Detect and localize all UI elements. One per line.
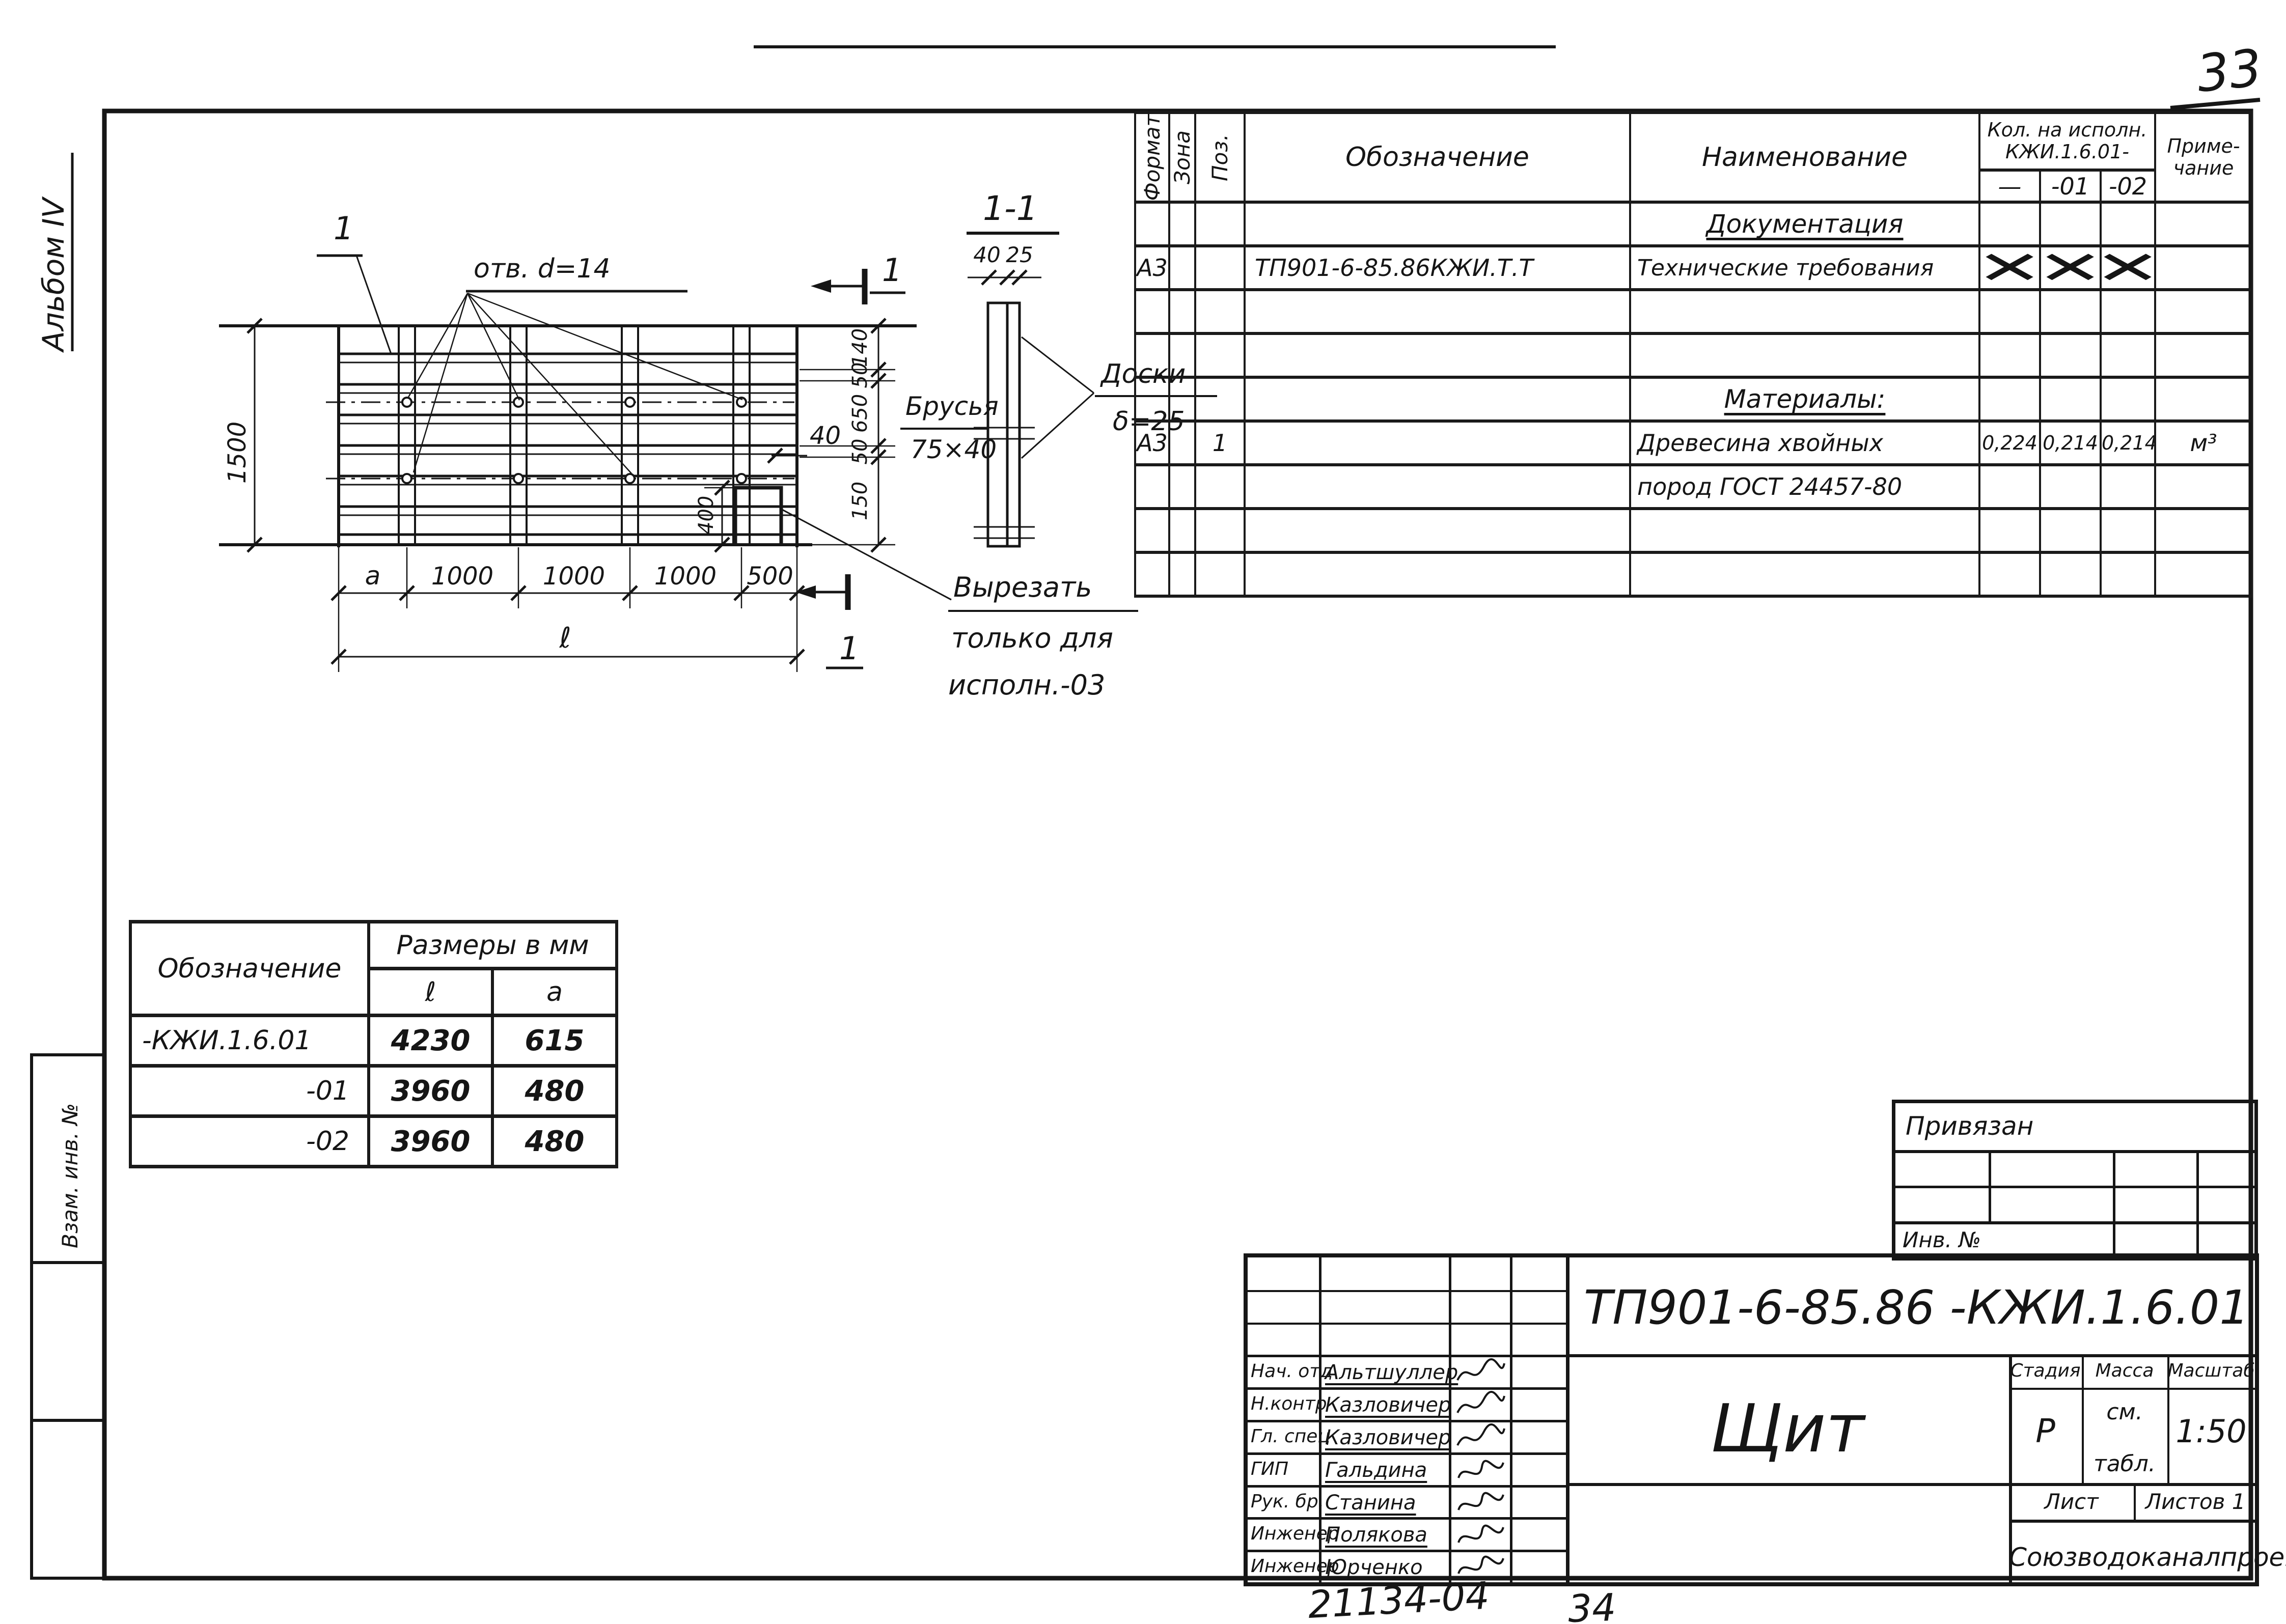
dimtab-row2-a: 480 [492,1066,617,1116]
qty-subcol-01: -01 [2040,170,2101,203]
dim-a: a [365,561,381,591]
sheets-label: Листов 1 [2136,1489,2255,1514]
mass-label: Масса [2082,1360,2167,1381]
section-dim-40: 40 [973,242,1000,267]
dim-1000-2: 1000 [543,562,605,591]
doc-row-format: А3 [1135,246,1169,290]
battens-label-line2: 75×40 [911,435,997,464]
dim-1000-1: 1000 [431,562,493,591]
col-header-pos: Поз. [1195,113,1245,202]
section-heading-documentation: Документация [1630,202,1979,246]
chain-140: 140 [848,328,872,367]
qty-subcol-base: — [1979,170,2040,203]
dim-height-text: 1500 [223,422,252,484]
dim-500: 500 [747,562,793,591]
section-mark-bottom-text: 1 [839,630,859,667]
col-header-designation: Обозначение [1245,113,1630,202]
table-row: -01 3960 480 [130,1066,617,1116]
section-mark-bottom-group [795,574,848,610]
inventory-number-label: Инв. № [1903,1227,1981,1252]
holes-label-group: отв. d=14 [408,254,742,473]
material-qty-base: 0,224 [1979,421,2040,465]
dimtab-row1-l: 4230 [369,1016,492,1066]
signature-role: Гл. спец [1251,1426,1330,1447]
stage-label: Стадия [2009,1360,2082,1381]
dimtab-header-a: a [492,969,617,1016]
section-heading-materials: Материалы: [1630,377,1979,421]
dimtab-header-l: ℓ [369,969,492,1016]
signature-role: Н.контр [1251,1393,1327,1414]
signature-role: Нач. отд [1251,1361,1333,1382]
dimtab-row1-a: 615 [492,1016,617,1066]
doc-row-mark-3: ✕ [2101,246,2155,290]
holes-label: отв. d=14 [474,254,611,284]
signature-name: Полякова [1325,1523,1427,1547]
dim-400-text: 400 [695,496,718,535]
organization-name: Союзводоканалпроект [2009,1543,2255,1572]
dimensions-table: Обозначение Размеры в мм ℓ a -КЖИ.1.6.01… [129,920,616,1168]
section-title: 1-1 [983,189,1038,228]
dimtab-row1-designation: -КЖИ.1.6.01 [130,1016,369,1066]
position-number: 1 [334,210,353,247]
signature-name: Гальдина [1325,1459,1427,1482]
material-row-format: А3 [1135,421,1169,465]
sheet-number: 33 [2194,38,2265,104]
chain-50b: 50 [848,439,872,465]
material-row-name1: Древесина хвойных [1630,421,1979,465]
col-header-format: Формат [1135,113,1169,202]
title-block: Нач. отд Альтшуллер Н.контр Казловичер Г… [1244,1253,2259,1586]
col-header-note: Приме- чание [2155,113,2252,202]
cutout-note-line1: Вырезать [953,571,1092,603]
mass-value-line1: см. [2082,1399,2167,1425]
col-header-qty: Кол. на исполн. КЖИ.1.6.01- [1979,113,2155,170]
cutout-note: Вырезать только для исполн.-03 [781,509,1138,701]
dimtab-row3-l: 3960 [369,1116,492,1167]
dim-40-text: 40 [810,422,841,450]
scale-label: Масштаб [2167,1360,2255,1381]
position-label: 1 [317,210,391,354]
table-row: -02 3960 480 [130,1116,617,1167]
dimtab-header-sizes: Размеры в мм [369,922,617,969]
margin-stamp-label: Взам. инв. № [58,1103,82,1248]
cutout-note-line3: исполн.-03 [948,669,1105,701]
chain-150: 150 [848,482,872,520]
drawing-sheet: Альбом IV Взам. инв. № 33 21134-04 34 [0,0,2286,1624]
col-header-zone: Зона [1169,113,1195,202]
signature-role: ГИП [1251,1459,1288,1479]
signature-name: Станина [1325,1491,1416,1515]
drawing-title: Щит [1566,1390,2009,1467]
stage-value: Р [2009,1413,2082,1450]
document-number: ТП901-6-85.86 -КЖИ.1.6.01 [1584,1280,2246,1335]
album-label: Альбом IV [36,196,71,353]
dimtab-header-designation: Обозначение [130,922,369,1016]
mass-value-line2: табл. [2082,1451,2167,1477]
dimtab-row2-designation: -01 [130,1066,369,1116]
chain-650: 650 [848,394,872,433]
signature-name: Альтшуллер [1325,1361,1458,1384]
doc-row-mark-2: ✕ [2040,246,2101,290]
signature-name: Казловичер [1325,1393,1451,1417]
dim-1000-3: 1000 [654,562,717,591]
binding-block-title: Привязан [1906,1111,2033,1141]
specification-table: Формат Зона Поз. Обозначение Наименовани… [1134,111,2251,598]
signature-name: Юрченко [1325,1556,1423,1579]
cutout-note-line2: только для [951,622,1113,654]
dimtab-row2-l: 3960 [369,1066,492,1116]
binding-block: Привязан Инв. № [1892,1100,2258,1261]
section-mark-top-text: 1 [882,251,902,289]
material-qty-01: 0,214 [2040,421,2101,465]
signature-name: Казловичер [1325,1426,1451,1449]
signature-scribbles [1452,1357,1508,1581]
material-unit: м³ [2155,421,2252,465]
dimtab-row3-designation: -02 [130,1116,369,1167]
qty-subcol-02: -02 [2101,170,2155,203]
table-row: -КЖИ.1.6.01 4230 615 [130,1016,617,1066]
chain-50a: 50 [848,362,872,388]
footer-page: 34 [1567,1586,1617,1624]
signature-role: Рук. бр. [1251,1491,1324,1512]
dim-total-text: ℓ [559,622,571,655]
doc-row-name: Технические требования [1630,246,1979,290]
dimtab-row3-a: 480 [492,1116,617,1167]
doc-row-designation: ТП901-6-85.86КЖИ.Т.Т [1245,246,1630,290]
material-row-name2: пород ГОСТ 24457-80 [1630,465,1979,509]
sheet-label: Лист [2009,1489,2134,1514]
doc-row-mark-1: ✕ [1979,246,2040,290]
section-mark-top-group [811,269,865,304]
section-dim-25: 25 [1006,242,1033,267]
material-row-pos: 1 [1195,421,1245,465]
scale-value: 1:50 [2167,1413,2255,1450]
battens-label-line1: Брусья [905,391,999,421]
col-header-name: Наименование [1630,113,1979,202]
material-qty-02: 0,214 [2101,421,2155,465]
